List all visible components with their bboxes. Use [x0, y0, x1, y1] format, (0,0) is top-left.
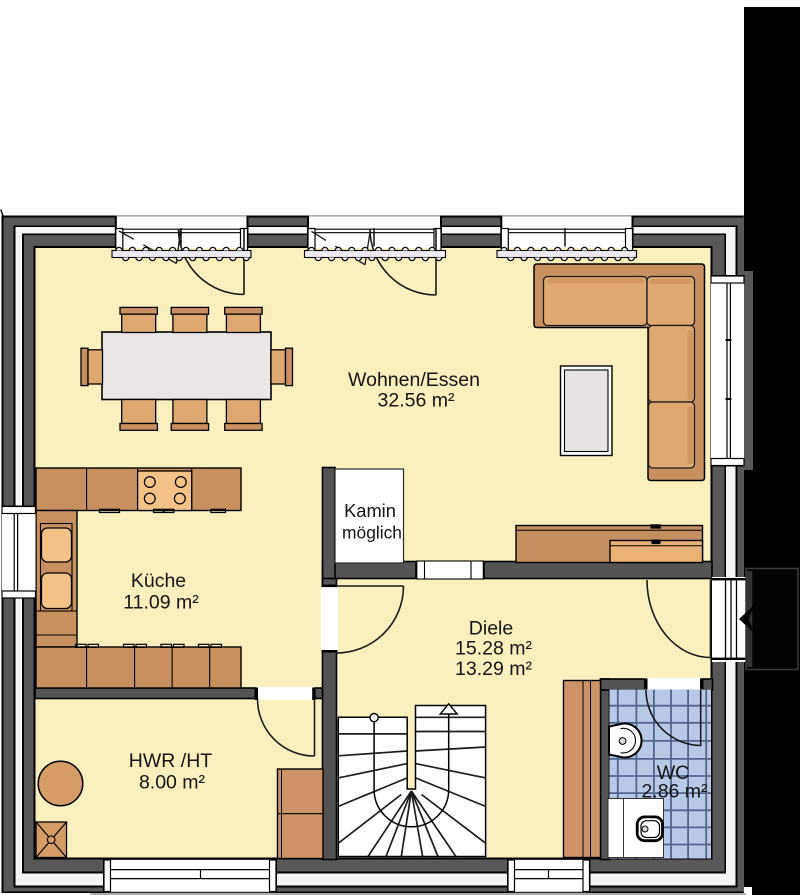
svg-text:2.86 m²: 2.86 m²: [641, 781, 708, 803]
svg-text:11.09 m²: 11.09 m²: [123, 592, 199, 614]
svg-text:möglich: möglich: [342, 522, 402, 542]
svg-text:15.28 m²: 15.28 m²: [455, 637, 532, 659]
svg-text:Wohnen/Essen: Wohnen/Essen: [348, 369, 480, 391]
svg-text:8.00 m²: 8.00 m²: [139, 772, 206, 794]
svg-text:Kamin: Kamin: [344, 500, 396, 521]
svg-text:32.56 m²: 32.56 m²: [378, 389, 455, 411]
svg-text:Küche: Küche: [131, 570, 186, 592]
svg-text:HWR /HT: HWR /HT: [129, 750, 212, 772]
svg-text:Diele: Diele: [469, 617, 513, 639]
svg-text:13.29 m²: 13.29 m²: [455, 658, 532, 680]
